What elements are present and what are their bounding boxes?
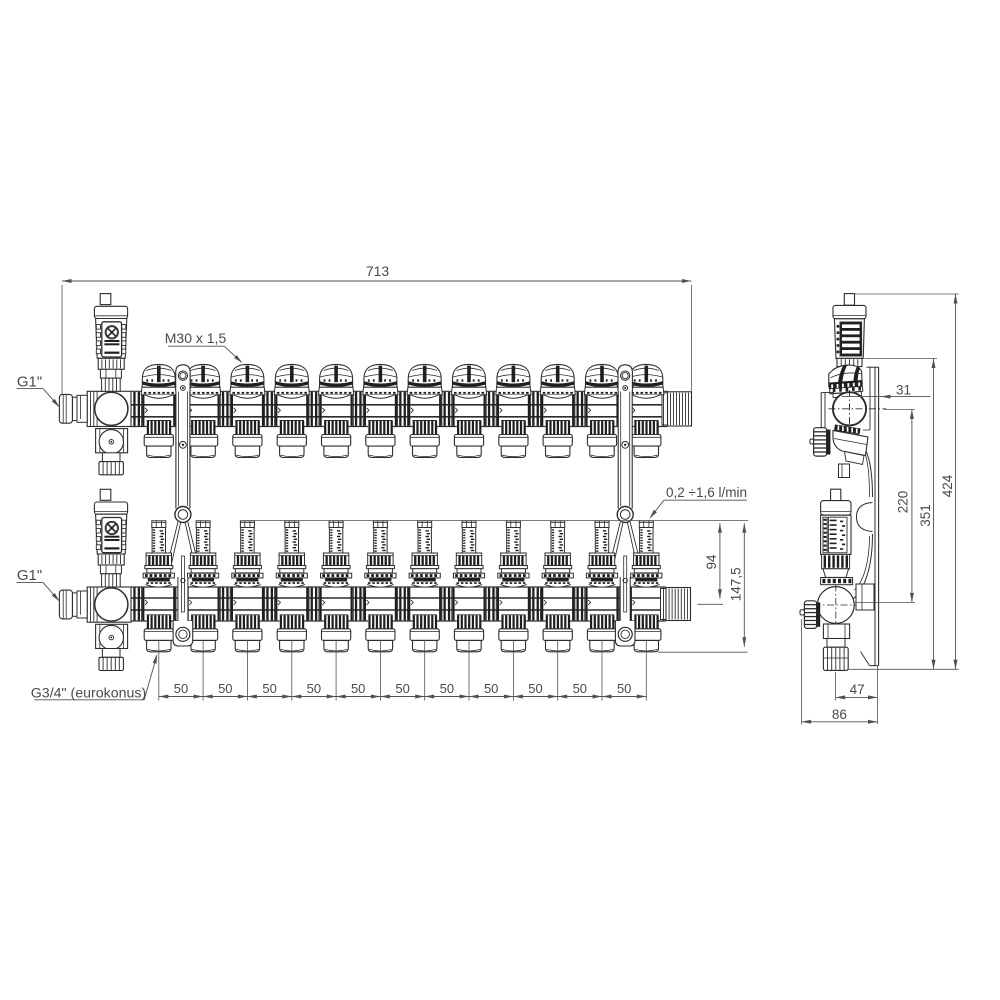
svg-text:50: 50 [573,681,587,696]
svg-text:50: 50 [262,681,276,696]
svg-text:351: 351 [918,504,933,527]
svg-text:50: 50 [174,681,188,696]
svg-text:50: 50 [528,681,542,696]
svg-text:50: 50 [395,681,409,696]
svg-text:147,5: 147,5 [729,567,744,601]
svg-text:47: 47 [850,682,865,697]
svg-text:50: 50 [617,681,631,696]
svg-text:94: 94 [704,554,719,570]
svg-text:M30 x 1,5: M30 x 1,5 [165,330,227,346]
svg-text:50: 50 [307,681,321,696]
svg-text:713: 713 [366,263,390,279]
svg-text:0,2 ÷1,6 l/min: 0,2 ÷1,6 l/min [666,485,747,500]
svg-text:G3/4" (eurokonus): G3/4" (eurokonus) [31,686,146,702]
svg-text:G1": G1" [17,374,42,391]
svg-text:86: 86 [832,707,847,722]
svg-text:220: 220 [896,491,911,514]
svg-text:G1": G1" [17,567,42,584]
svg-text:50: 50 [351,681,365,696]
svg-text:50: 50 [484,681,498,696]
svg-text:50: 50 [218,681,232,696]
svg-text:50: 50 [440,681,454,696]
svg-text:424: 424 [940,474,955,497]
svg-text:31: 31 [896,383,911,398]
